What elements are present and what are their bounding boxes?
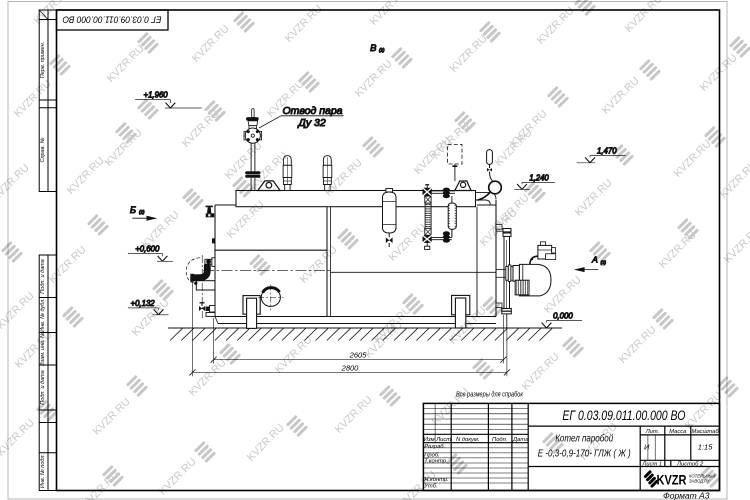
svg-text:Ду 32: Ду 32	[297, 117, 326, 129]
svg-text:Б: Б	[130, 205, 136, 216]
svg-text:Лит.: Лит.	[645, 429, 660, 435]
svg-text:В: В	[370, 43, 377, 54]
svg-text:Лист: Лист	[435, 437, 451, 443]
svg-text:0,000: 0,000	[553, 312, 573, 321]
svg-text:N докум.: N докум.	[456, 437, 479, 443]
svg-text:И: И	[644, 443, 650, 452]
svg-text:Масса: Масса	[669, 429, 687, 435]
svg-text:Изм: Изм	[424, 437, 435, 443]
svg-text:Перв. примен.: Перв. примен.	[40, 42, 46, 79]
svg-text:Лист 1: Лист 1	[641, 462, 662, 468]
svg-text:Листоб 2: Листоб 2	[676, 462, 704, 468]
svg-text:ЕГ 0.03.09.011.00.000 ВО: ЕГ 0.03.09.011.00.000 ВО	[562, 408, 685, 423]
svg-text:1,240: 1,240	[529, 174, 549, 183]
svg-text:Отвод пара: Отвод пара	[282, 105, 342, 117]
svg-text:Масштаб: Масштаб	[692, 429, 720, 435]
svg-text:+0,132: +0,132	[131, 299, 156, 308]
svg-text:Подп.: Подп.	[492, 437, 507, 443]
svg-text:(2): (2)	[139, 210, 145, 215]
svg-text:Инв. № дубл.: Инв. № дубл.	[40, 298, 46, 332]
svg-text:Подп. и дата: Подп. и дата	[40, 370, 46, 404]
svg-text:Дата: Дата	[512, 437, 529, 443]
svg-text:Формат А3: Формат А3	[663, 491, 710, 500]
svg-text:(2): (2)	[379, 47, 385, 52]
svg-text:KVZR: KVZR	[657, 472, 687, 488]
svg-text:Подп. и дата: Подп. и дата	[40, 259, 46, 293]
svg-text:1:15: 1:15	[698, 443, 713, 452]
svg-text:ЕГ 0.03.09.011.00.000 ВО: ЕГ 0.03.09.011.00.000 ВО	[62, 14, 162, 25]
svg-text:Инв. № подл.: Инв. № подл.	[40, 454, 46, 488]
svg-text:Справ. №: Справ. №	[40, 137, 46, 162]
svg-text:Разраб.: Разраб.	[424, 444, 445, 450]
svg-text:А: А	[591, 255, 598, 265]
svg-text:+1,960: +1,960	[144, 91, 169, 100]
svg-text:Т.контр.: Т.контр.	[424, 459, 447, 465]
svg-text:2800: 2800	[341, 363, 360, 372]
